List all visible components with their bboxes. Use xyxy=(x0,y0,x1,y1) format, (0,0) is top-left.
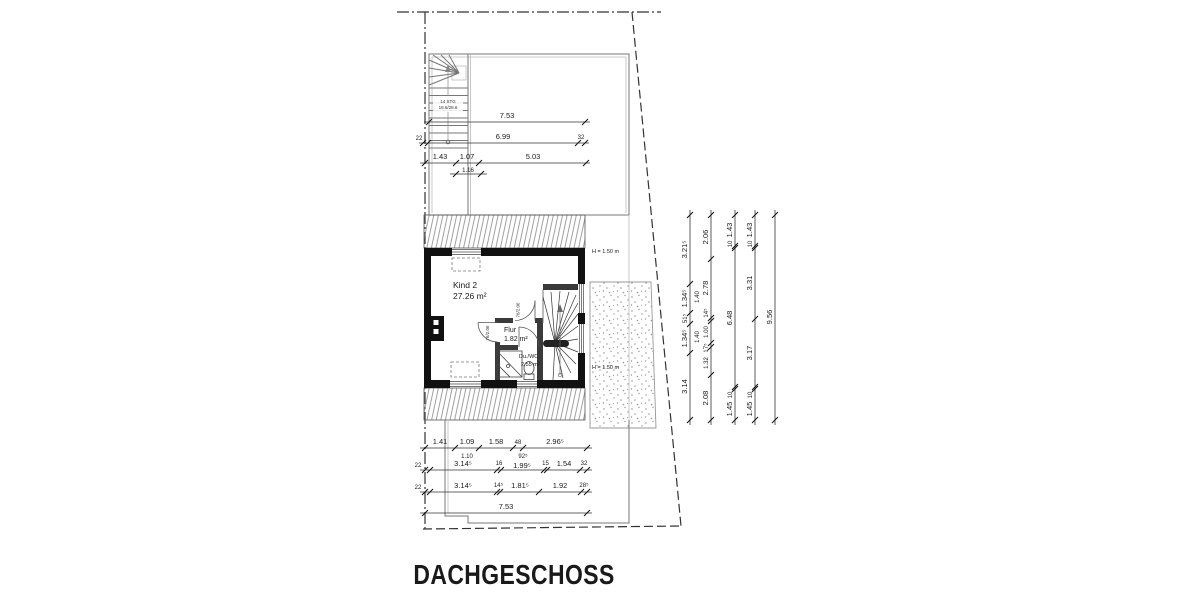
dim-label: 1.81⁵ xyxy=(511,481,529,490)
dim-label: 1.00 xyxy=(704,326,710,338)
dim-label: 1.43 xyxy=(433,152,448,161)
dim-chains-right: 3.21⁵ 1.34⁵ 51⁵ 1.34⁵ 3.14 1.40 1.40 2.0… xyxy=(680,210,778,425)
dim-label: 1.45 xyxy=(745,402,754,417)
dim-label: 10 xyxy=(748,391,754,398)
dim-label: 1.41 xyxy=(433,437,448,446)
dim-label: 10 xyxy=(728,240,734,247)
dim-label: 3.14 xyxy=(680,379,689,394)
drawing-title: DACHGESCHOSS xyxy=(413,560,614,591)
dim-label: 1.43 xyxy=(725,223,734,238)
dim-label: 5.03 xyxy=(526,152,541,161)
dim-label: 32 xyxy=(578,135,585,141)
dim-label: 14⁵ xyxy=(494,482,504,489)
window-bottom-left xyxy=(450,382,481,387)
dim-label: 3.17 xyxy=(745,346,754,361)
skylight-top-dashed xyxy=(452,258,480,271)
dim-chains-top: 7.53 22 6.99 32 1.43 1.07 5.03 1.16 xyxy=(416,111,590,177)
dim-label: 10 xyxy=(728,391,734,398)
dim-label: 1.34⁵ xyxy=(680,330,689,348)
dim-label: 14⁵ xyxy=(703,308,710,318)
dim-label: 28⁵ xyxy=(579,482,589,489)
dim-label: 2.78 xyxy=(701,281,710,296)
dim-label: 1.34⁵ xyxy=(680,290,689,308)
dim-label: 1.40 xyxy=(695,331,701,343)
dim-label: 32 xyxy=(581,461,588,467)
dim-label: 1.45 xyxy=(725,402,734,417)
dim-label: 3.14⁵ xyxy=(454,481,472,490)
room-duwc-name: Du./WC xyxy=(519,354,538,360)
dim-label: 51⁵ xyxy=(682,313,689,323)
dim-label: 1.54 xyxy=(557,459,572,468)
floor-plan-canvas: 14 STG 18.6/28.6 xyxy=(0,0,1200,600)
height-label-lower: H = 1.50 m xyxy=(592,365,619,371)
dim-label: 7.53 xyxy=(499,502,514,511)
site-boundary xyxy=(397,12,681,529)
dim-label: 6.48 xyxy=(725,311,734,326)
door-flur-size-label: 76/2.06 xyxy=(516,302,521,318)
staircase-attic xyxy=(543,291,578,380)
window-right-upper xyxy=(580,284,584,313)
dim-label: 1.32 xyxy=(704,357,710,369)
dim-label: 15 xyxy=(542,461,549,467)
dim-label: 2.06 xyxy=(701,230,710,245)
dim-label: 3.21⁵ xyxy=(680,241,689,259)
terrace-area xyxy=(590,282,656,428)
dim-label: 1.99⁵ xyxy=(513,461,531,470)
height-label-upper: H = 1.50 m xyxy=(592,249,619,255)
dim-label: 1.07 xyxy=(460,152,475,161)
dim-label: 1.58 xyxy=(489,437,504,446)
dim-label: 2.08 xyxy=(701,391,710,406)
dim-label: 7.53 xyxy=(500,111,515,120)
dim-label: 1.09 xyxy=(460,437,475,446)
dim-label: 22 xyxy=(416,136,423,142)
room-flur-name: Flur xyxy=(504,327,517,334)
dim-label: 1.16 xyxy=(462,168,474,174)
dim-label: 9.56 xyxy=(765,310,774,325)
dim-label: 6.99 xyxy=(496,132,511,141)
chimney xyxy=(431,316,444,341)
stair-riser-label: 18.6/28.6 xyxy=(439,105,458,110)
lower-footprint-outline xyxy=(445,420,629,523)
dim-label: 3.31 xyxy=(745,276,754,291)
dim-label: 1.43 xyxy=(745,223,754,238)
window-top xyxy=(452,250,481,255)
dim-label: 16 xyxy=(496,461,503,467)
dim-label: 3.14⁵ xyxy=(454,459,472,468)
dim-chains-bottom: 1.41 1.09 1.58 48 2.96⁵ 1.10 92⁵ 22 3.14… xyxy=(415,437,592,516)
room-kind2-area: 27.26 m² xyxy=(453,291,487,301)
dim-label: 10 xyxy=(748,240,754,247)
window-right-lower xyxy=(580,324,584,353)
window-bottom-right xyxy=(517,382,537,387)
skylight-bottom-dashed xyxy=(451,362,479,377)
dim-label: 2.96⁵ xyxy=(546,437,564,446)
room-flur-area: 1.82 m² xyxy=(504,336,528,343)
stair-steps-label: 14 STG xyxy=(440,99,456,104)
dim-label: 22 xyxy=(415,485,422,491)
door-kind2-size-label: 76/2.06 xyxy=(485,325,490,341)
staircase-upper: 14 STG 18.6/28.6 xyxy=(429,55,468,148)
room-kind2-name: Kind 2 xyxy=(453,280,477,290)
dim-label: 17⁵ xyxy=(703,343,710,353)
roof-hatch-strips xyxy=(424,215,585,420)
dim-label: 22 xyxy=(415,463,422,469)
dim-label: 48 xyxy=(515,440,522,446)
dim-label: 1.92 xyxy=(553,481,568,490)
room-duwc-area: 2.55 m² xyxy=(521,362,540,368)
dim-label: 92⁵ xyxy=(518,453,528,460)
